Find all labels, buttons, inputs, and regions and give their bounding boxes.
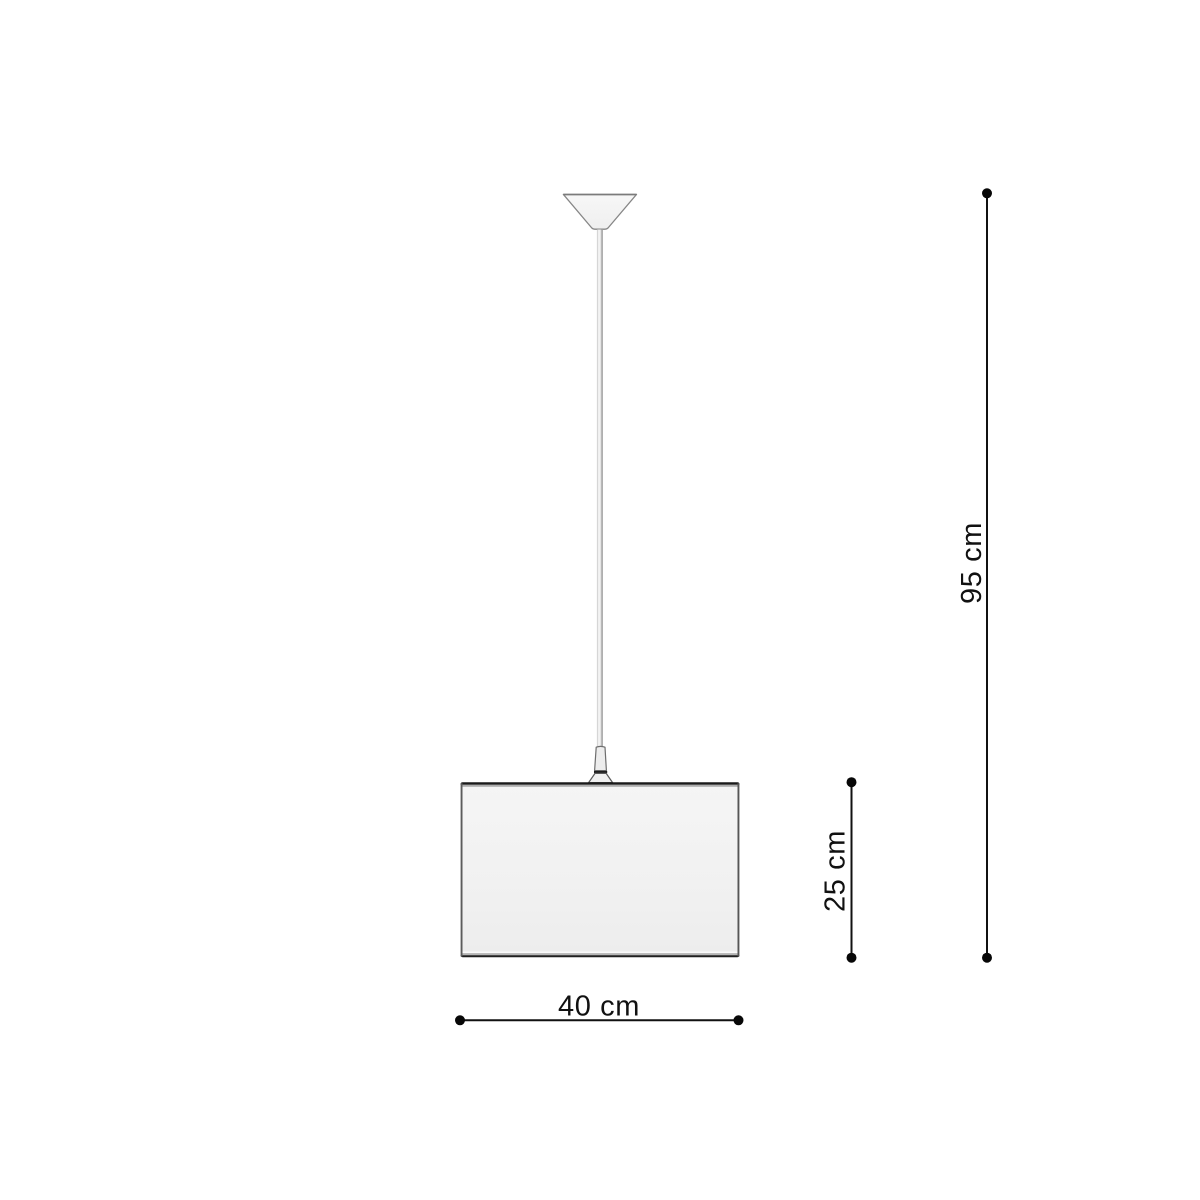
svg-text:25 cm: 25 cm <box>819 830 851 912</box>
svg-text:40 cm: 40 cm <box>558 990 640 1022</box>
svg-text:95 cm: 95 cm <box>956 522 988 604</box>
